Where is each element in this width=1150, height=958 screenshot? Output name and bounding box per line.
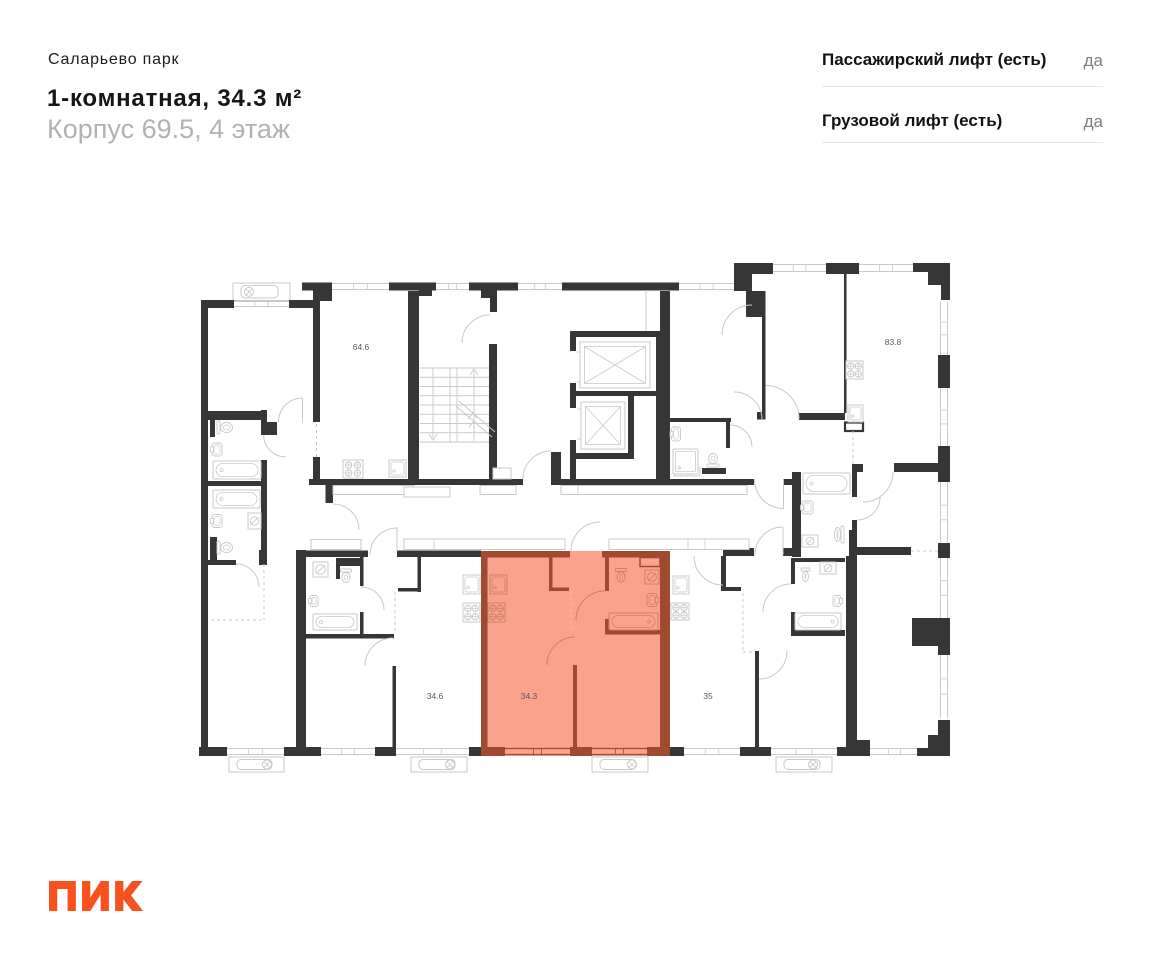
svg-text:34.3: 34.3 <box>521 691 538 701</box>
svg-text:35: 35 <box>703 691 713 701</box>
svg-text:34.6: 34.6 <box>427 691 444 701</box>
svg-text:83.8: 83.8 <box>885 337 902 347</box>
svg-text:64.6: 64.6 <box>353 342 370 352</box>
